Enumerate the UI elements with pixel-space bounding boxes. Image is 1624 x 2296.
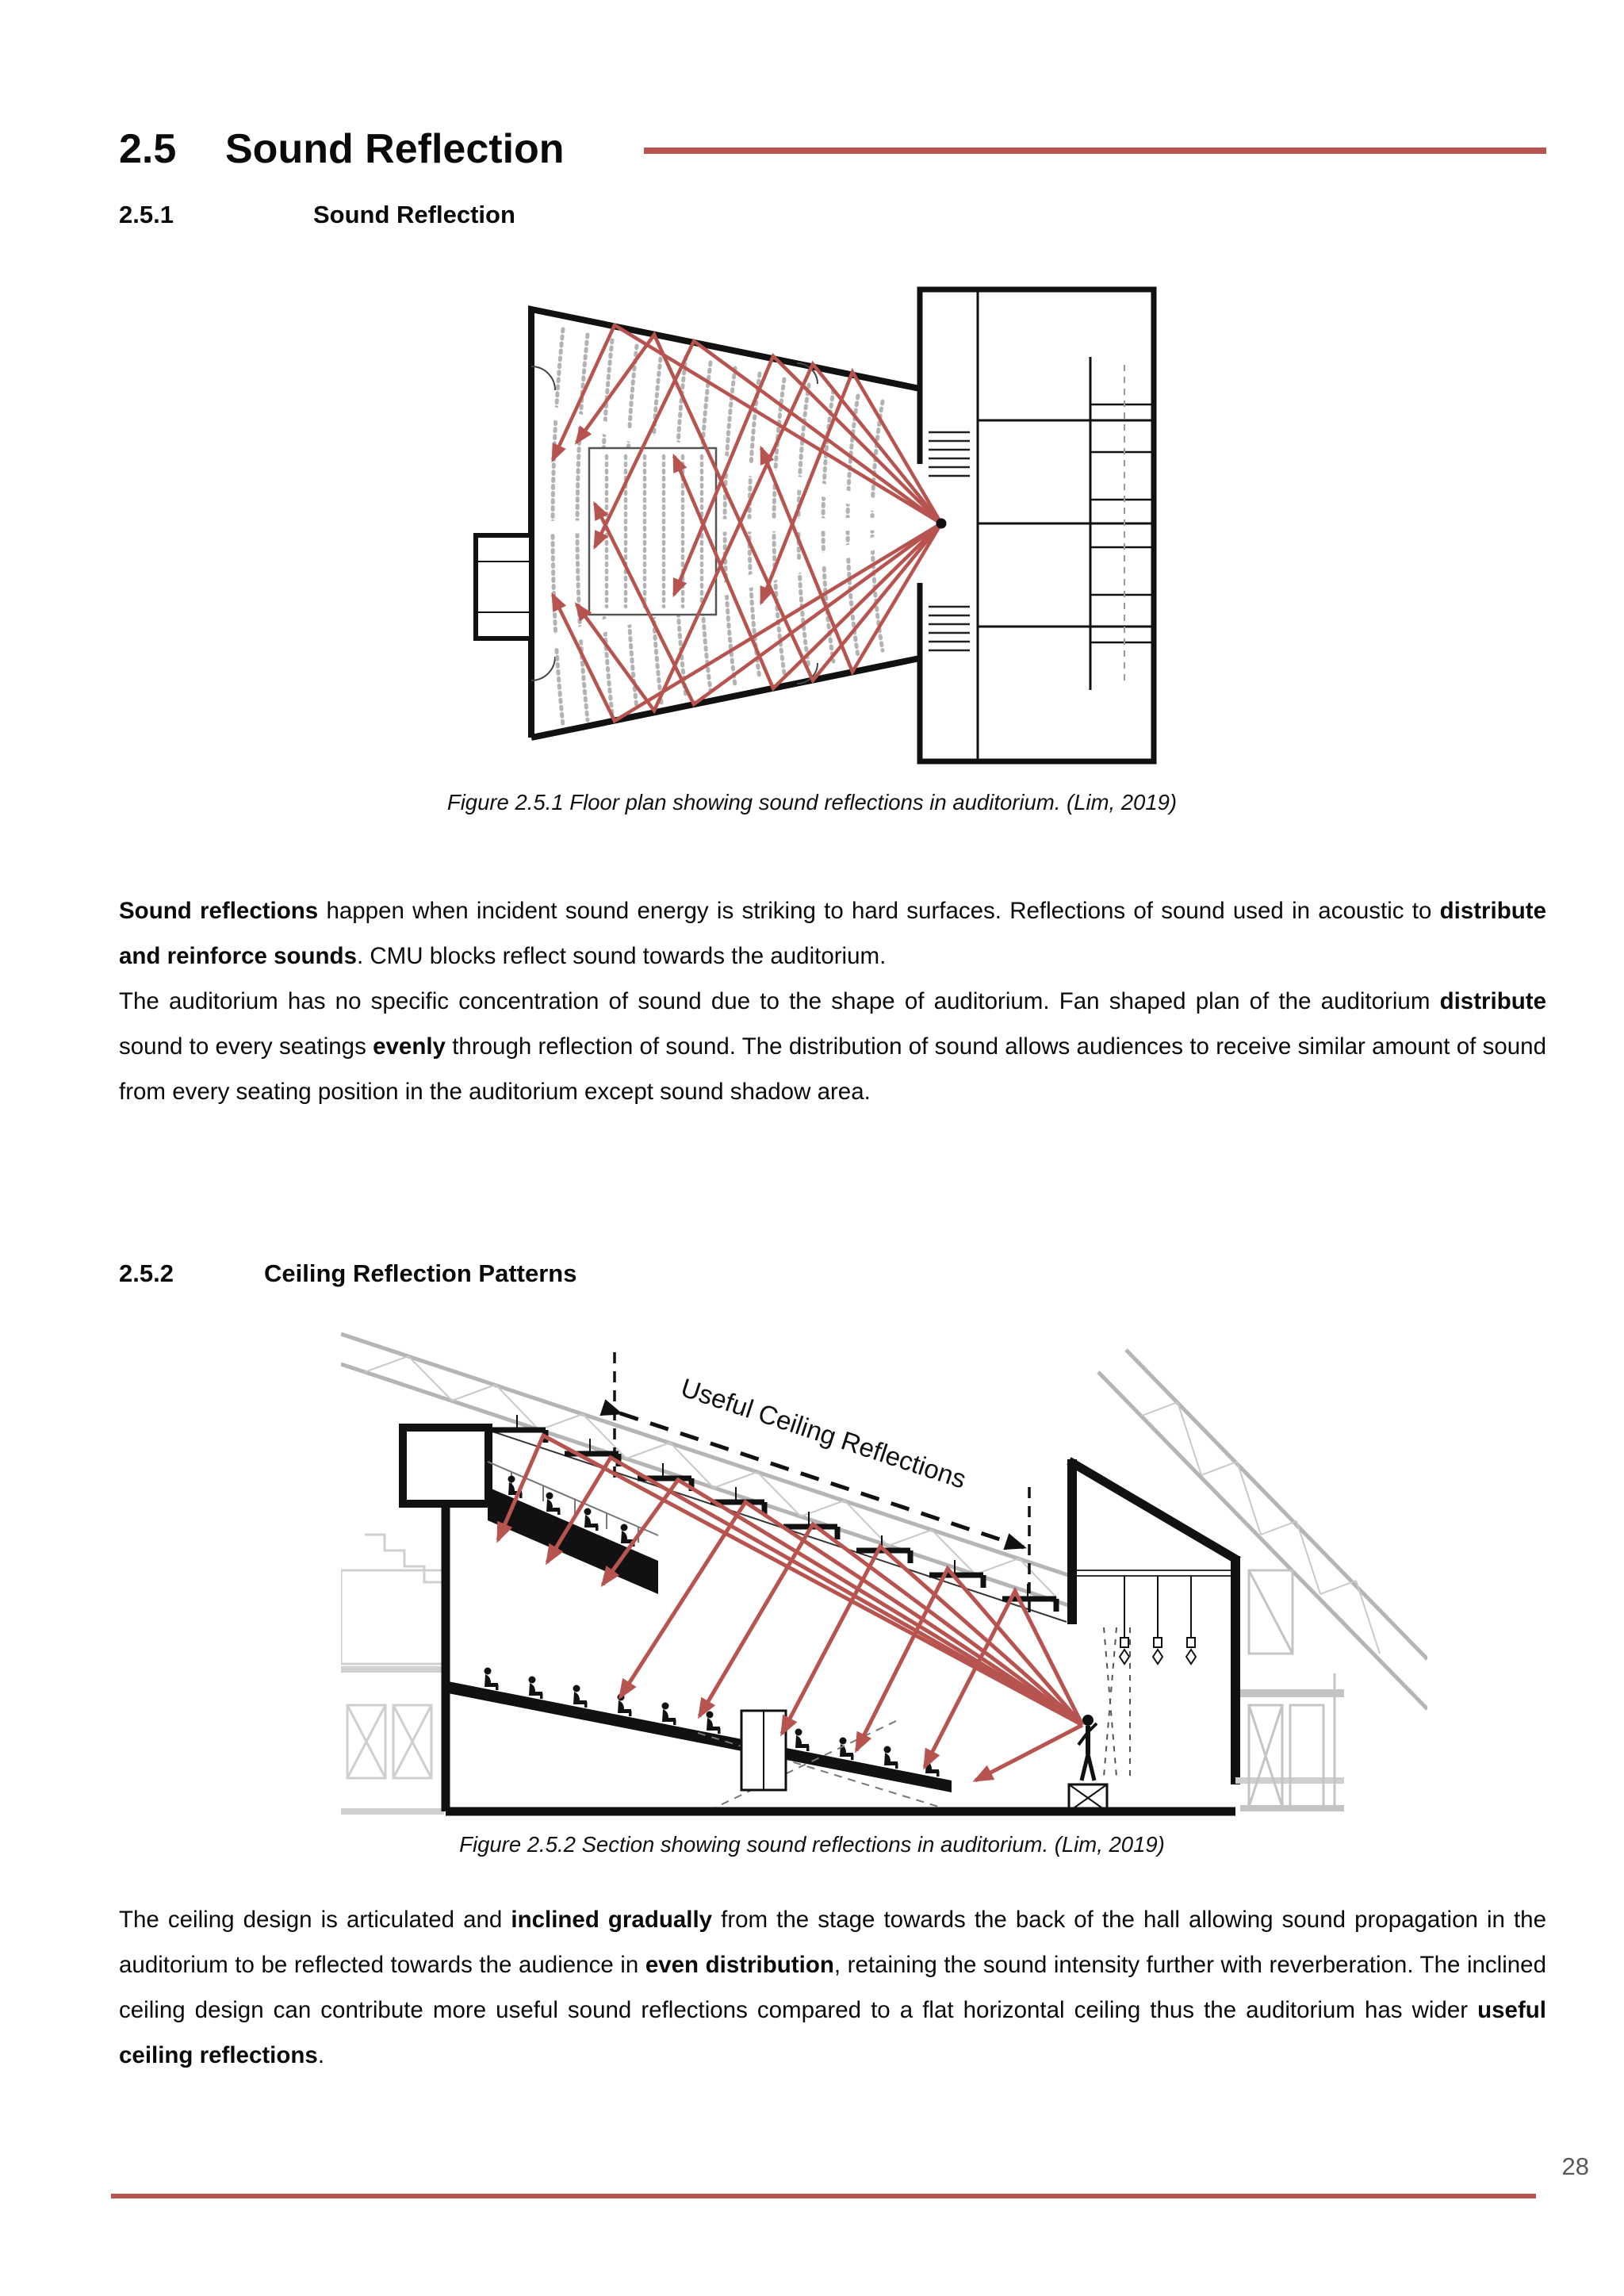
body-text-block-2: The ceiling design is articulated and in… (119, 1897, 1546, 2078)
heading-accent-rule (644, 148, 1546, 154)
figure2-caption: Figure 2.5.2 Section showing sound refle… (0, 1832, 1624, 1857)
annotation-label: Useful Ceiling Reflections (677, 1372, 970, 1493)
text-segment: happen when incident sound energy is str… (318, 898, 1439, 924)
main-raked-seating (448, 1668, 952, 1809)
paragraph-3: The ceiling design is articulated and in… (119, 1897, 1546, 2078)
subsection-number: 2.5.1 (119, 201, 313, 229)
stairs (929, 432, 970, 650)
text-segment: The ceiling design is articulated and (119, 1907, 511, 1933)
figure1-caption: Figure 2.5.1 Floor plan showing sound re… (0, 790, 1624, 815)
body-text-block-1: Sound reflections happen when incident s… (119, 888, 1546, 1114)
projection-room (403, 1428, 488, 1811)
floor-plan-drawing (456, 262, 1170, 785)
text-segment: sound to every seatings (119, 1033, 373, 1060)
figure-section: Useful Ceiling Reflections (341, 1332, 1427, 1848)
section-title: Sound Reflection (225, 126, 565, 172)
background-building-left (341, 1535, 446, 1811)
section-number: 2.5 (119, 125, 189, 173)
stage-house (920, 289, 1154, 761)
subsection-heading-251: 2.5.1Sound Reflection (119, 201, 515, 229)
floor-lines (446, 1780, 1344, 1811)
ceiling-reflection-rays (498, 1435, 1082, 1780)
text-segment: The auditorium has no specific concentra… (119, 988, 1440, 1014)
figure-floor-plan (456, 262, 1170, 789)
subsection-title: Ceiling Reflection Patterns (264, 1259, 576, 1287)
section-drawing: Useful Ceiling Reflections (341, 1332, 1427, 1844)
stage-lights (1120, 1576, 1196, 1664)
section-heading: 2.5Sound Reflection (119, 125, 565, 173)
control-room (476, 535, 531, 638)
text-segment: Sound reflections (119, 898, 318, 924)
stage-curtain (1104, 1627, 1130, 1777)
text-segment: inclined gradually (511, 1907, 712, 1933)
text-segment: distribute (1440, 988, 1546, 1014)
stage-house-section (1069, 1459, 1239, 1811)
text-segment: . CMU blocks reflect sound towards the a… (357, 943, 886, 969)
paragraph-1: Sound reflections happen when incident s… (119, 888, 1546, 979)
text-segment: . (318, 2042, 324, 2068)
paragraph-2: The auditorium has no specific concentra… (119, 979, 1546, 1114)
document-page: 2.5Sound Reflection 2.5.1Sound Reflectio… (0, 0, 1624, 2296)
text-segment: evenly (373, 1033, 446, 1060)
subsection-title: Sound Reflection (313, 201, 515, 228)
text-segment: even distribution (645, 1952, 834, 1978)
page-number: 28 (1562, 2152, 1589, 2181)
subsection-heading-252: 2.5.2Ceiling Reflection Patterns (119, 1259, 576, 1288)
sound-source-point (936, 519, 947, 529)
footer-accent-rule (111, 2194, 1536, 2198)
subsection-number: 2.5.2 (119, 1259, 264, 1288)
background-roof-right (1098, 1350, 1427, 1709)
